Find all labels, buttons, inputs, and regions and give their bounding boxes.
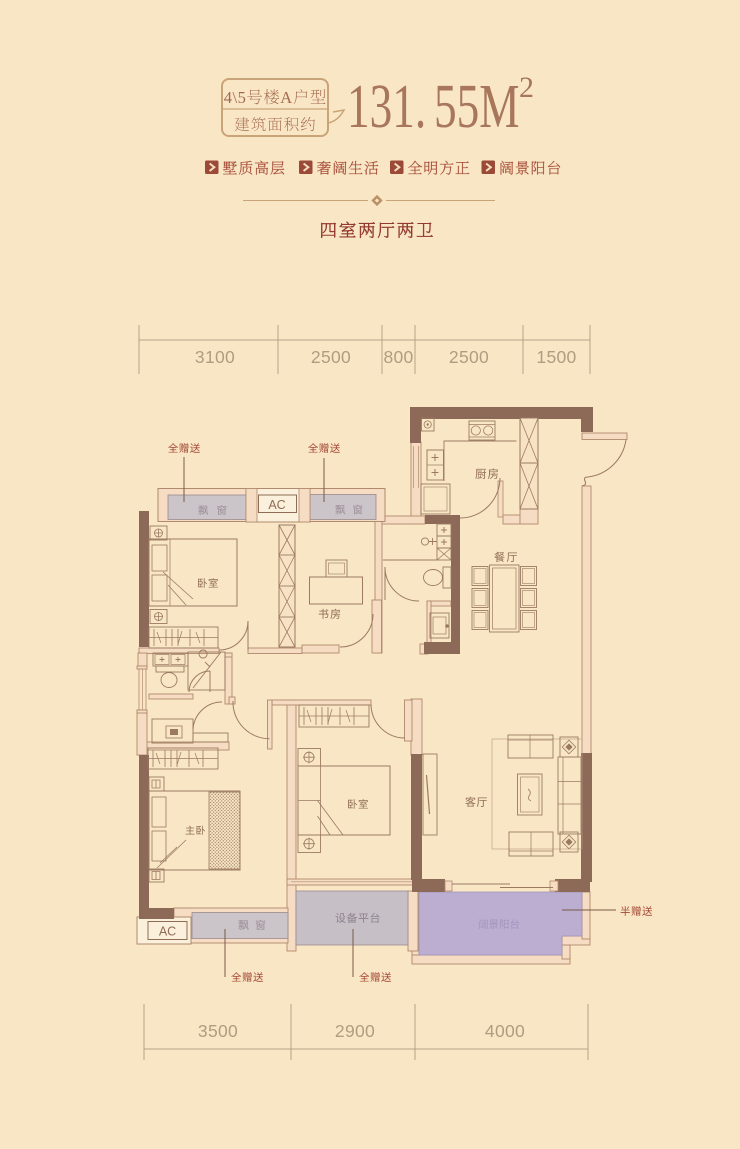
svg-text:AC: AC xyxy=(268,498,285,512)
svg-text:A: A xyxy=(280,88,292,107)
svg-text:5: 5 xyxy=(238,88,246,107)
svg-text:55M: 55M xyxy=(434,72,519,141)
svg-text:2900: 2900 xyxy=(335,1021,375,1041)
svg-text:1500: 1500 xyxy=(536,347,576,367)
svg-text:2500: 2500 xyxy=(311,347,351,367)
svg-text:2500: 2500 xyxy=(449,347,489,367)
svg-text:AC: AC xyxy=(159,925,176,939)
svg-text:3100: 3100 xyxy=(195,347,235,367)
svg-text:131.: 131. xyxy=(347,72,426,141)
svg-text:800: 800 xyxy=(383,347,413,367)
svg-text:4: 4 xyxy=(224,88,232,107)
svg-text:2: 2 xyxy=(519,71,534,104)
svg-text:3500: 3500 xyxy=(198,1021,238,1041)
svg-text:4000: 4000 xyxy=(485,1021,525,1041)
